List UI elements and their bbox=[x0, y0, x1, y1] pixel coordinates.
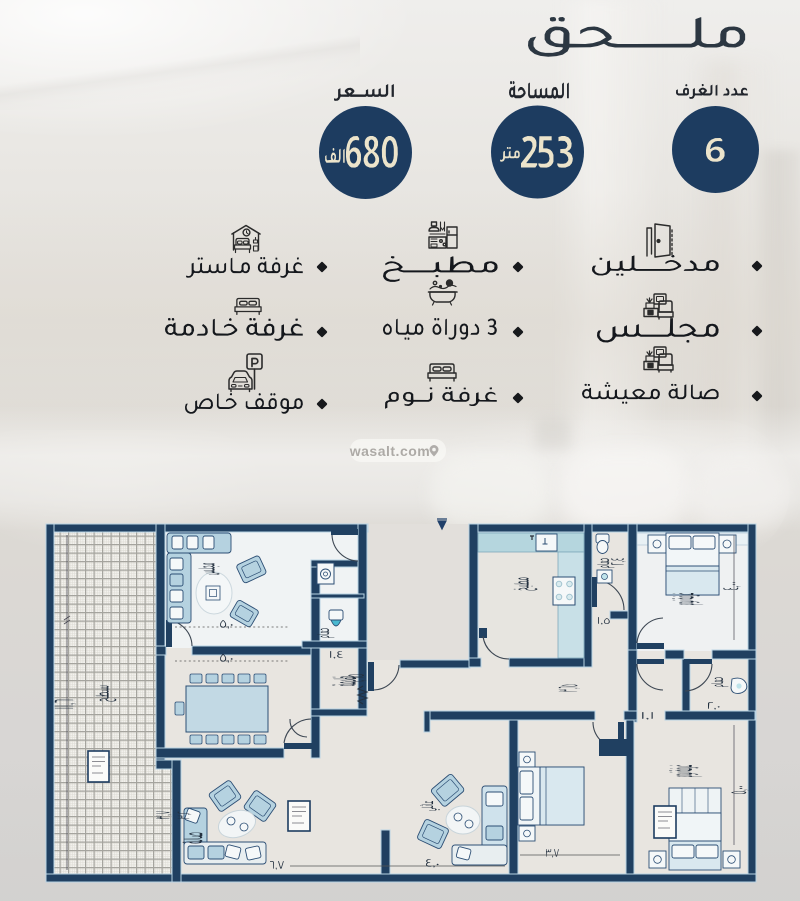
svg-text:wasalt.com: wasalt.com bbox=[349, 443, 430, 459]
